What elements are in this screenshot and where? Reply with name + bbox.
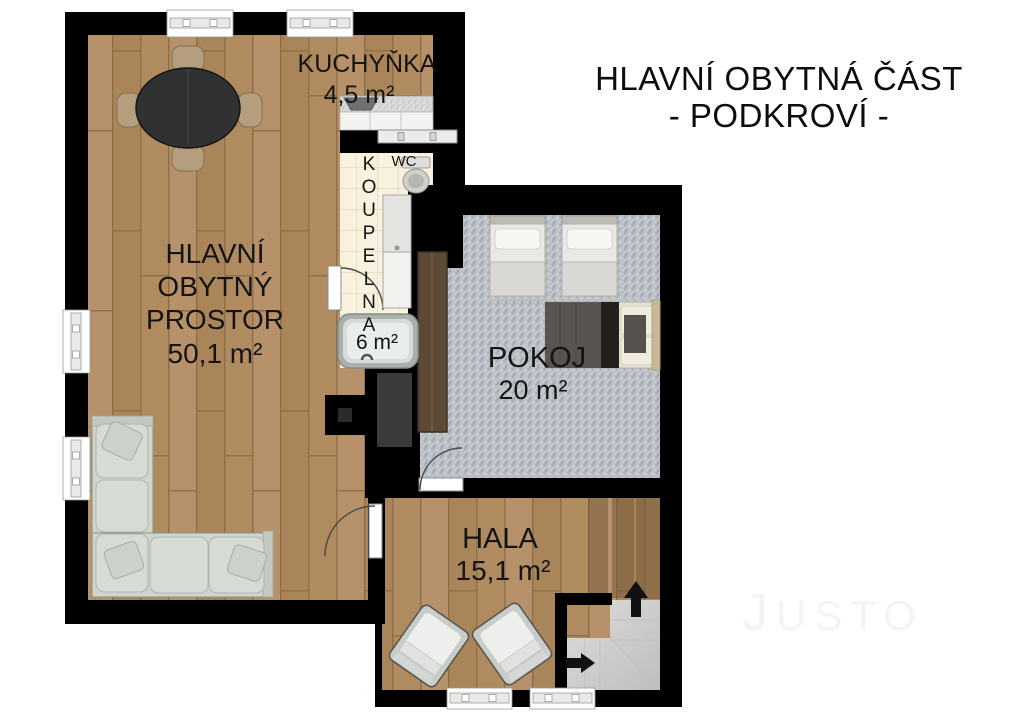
svg-text:O: O — [362, 177, 377, 198]
page-title-line2: - PODKROVÍ - — [669, 97, 890, 134]
single-bed-1 — [490, 216, 545, 296]
bedroom-name: POKOJ — [488, 342, 586, 374]
dining-chair — [238, 93, 262, 127]
living-room-area: 50,1 m² — [168, 338, 263, 369]
svg-text:N: N — [362, 292, 376, 313]
dining-chair — [172, 145, 204, 171]
hall-area: 15,1 m² — [456, 555, 551, 586]
watermark: JUSTO — [742, 584, 924, 642]
single-bed-2 — [562, 216, 617, 296]
window-top-2 — [287, 10, 353, 37]
wc-label: WC — [392, 153, 417, 170]
svg-text:K: K — [363, 154, 376, 175]
kitchen-pass-window — [378, 130, 457, 143]
bedroom-area: 20 m² — [498, 375, 567, 405]
living-room-name-line1: HLAVNÍ — [165, 238, 264, 269]
svg-text:E: E — [363, 246, 376, 267]
window-left-2 — [63, 437, 90, 500]
hall-label: HALA 15,1 m² — [456, 523, 551, 586]
window-bottom-1 — [447, 688, 512, 709]
floor-plan-page: HLAVNÍ OBYTNÝ PROSTOR 50,1 m² KUCHYŇKA 4… — [0, 0, 1024, 724]
chimney — [325, 395, 365, 435]
kitchenette-name: KUCHYŇKA — [298, 49, 437, 78]
window-left-1 — [63, 310, 90, 373]
kitchenette-area: 4,5 m² — [324, 81, 395, 109]
page-title: HLAVNÍ OBYTNÁ ČÁST - PODKROVÍ - — [595, 60, 963, 134]
hall-name: HALA — [462, 523, 538, 555]
window-bottom-2 — [530, 688, 595, 709]
bathroom-area: 6 m² — [356, 331, 398, 354]
stairs-wall-vertical — [555, 593, 567, 690]
living-room-name-line3: PROSTOR — [146, 304, 284, 335]
hall-floor-dark-planks — [588, 498, 660, 599]
bathroom-sink-cabinet — [383, 195, 411, 308]
living-room-name-line2: OBYTNÝ — [157, 271, 272, 302]
closet — [377, 373, 412, 447]
floor-plan: HLAVNÍ OBYTNÝ PROSTOR 50,1 m² KUCHYŇKA 4… — [0, 0, 1024, 724]
svg-text:U: U — [362, 200, 376, 221]
bedroom-hall-wall — [368, 478, 682, 498]
svg-text:L: L — [364, 269, 375, 290]
svg-text:P: P — [363, 223, 376, 244]
page-title-line1: HLAVNÍ OBYTNÁ ČÁST — [595, 60, 963, 97]
wardrobe-door-line — [431, 253, 433, 431]
window-top-1 — [167, 10, 233, 37]
